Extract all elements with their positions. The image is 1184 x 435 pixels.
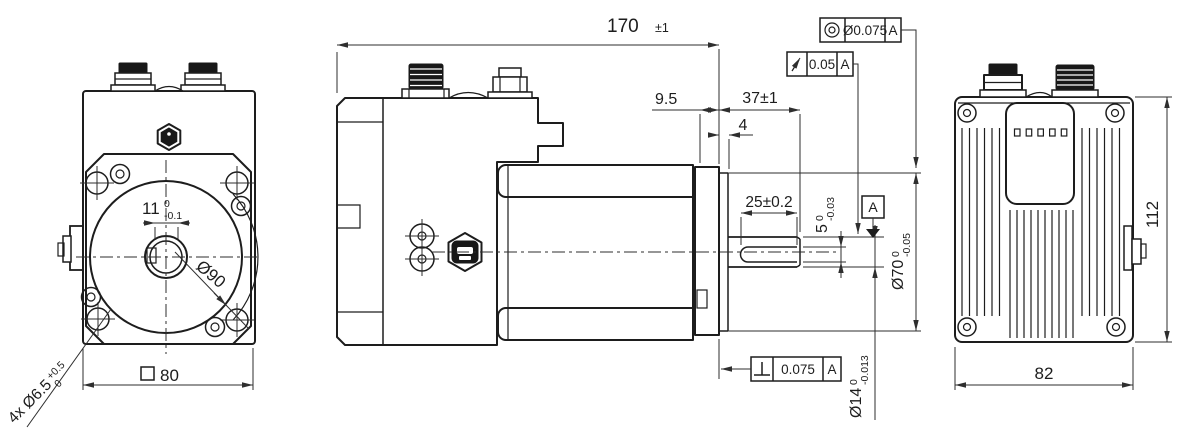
dim-shaft-diameter-value: Ø14 — [848, 388, 865, 418]
dim-keyway-length-value: 25±0.2 — [745, 194, 792, 211]
dim-pilot-fit-value: Ø70 — [890, 260, 907, 290]
dim-keyway-width-upper: 0 — [164, 198, 170, 210]
m12-connector-icon — [1052, 65, 1098, 97]
dim-shaft-diameter-lower: -0.013 — [859, 355, 871, 385]
hex-bolt-icon — [158, 124, 181, 150]
heatsink-housing — [955, 64, 1146, 342]
fcf-runout-value: 0.05 — [809, 57, 835, 72]
dim-shaft-diameter: Ø14 0 -0.013 — [803, 225, 884, 420]
front-view: 11 0 -0.1 Ø90 80 4x Ø6.5 +0.5 0 — [4, 63, 259, 430]
fcf-runout-datum: A — [840, 57, 849, 72]
fcf-concentricity-datum: A — [888, 23, 897, 38]
dim-overall-length-tol: ±1 — [655, 21, 669, 35]
dim-pilot-fit-lower: -0.05 — [901, 233, 913, 257]
m12-connector-icon — [111, 63, 155, 91]
dim-pilot-height: 4 — [709, 117, 753, 169]
perpendicularity-icon — [754, 362, 770, 375]
side-connector-icon — [1124, 226, 1146, 270]
fcf-perpendicularity: 0.075 A — [719, 339, 841, 381]
small-connector-icon — [488, 68, 532, 98]
shaft-keyway — [741, 247, 798, 262]
side-view: 170 ±1 9.5 37±1 4 25±0 — [337, 16, 921, 420]
back-view: 112 82 — [955, 64, 1172, 390]
drawing-sheet: 11 0 -0.1 Ø90 80 4x Ø6.5 +0.5 0 — [0, 0, 1184, 435]
datum-a-label: A — [868, 199, 878, 215]
fcf-runout: 0.05 A — [787, 52, 858, 234]
datum-a: A — [862, 196, 884, 238]
dim-overall-length-value: 170 — [607, 16, 639, 37]
side-connector-icon — [58, 226, 83, 270]
dim-pilot-height-value: 4 — [739, 117, 748, 134]
dim-flange-square-value: 80 — [160, 366, 179, 385]
dim-mounting-holes-value: 4x Ø6.5 — [5, 376, 55, 426]
fcf-concentricity-value: Ø0.075 — [843, 23, 887, 38]
dim-shaft-length-value: 37±1 — [742, 90, 778, 107]
dim-body-width-value: 82 — [1035, 364, 1054, 383]
concentricity-icon — [825, 23, 839, 37]
dim-keyway-width-value: 11 — [142, 199, 160, 218]
front-flange — [76, 154, 259, 354]
dim-flange-offset: 9.5 — [652, 91, 719, 163]
dim-flange-offset-value: 9.5 — [655, 91, 677, 108]
dim-keyway-width-lower: -0.1 — [164, 210, 182, 222]
led-panel — [1006, 103, 1074, 204]
dim-body-height: 112 — [1135, 97, 1172, 342]
square-symbol-icon — [141, 367, 154, 380]
dim-body-width: 82 — [955, 347, 1133, 390]
dim-keyway-height-lower: -0.03 — [825, 197, 837, 221]
fcf-perpendicularity-value: 0.075 — [781, 362, 815, 377]
drive-housing — [337, 64, 563, 345]
circular-runout-icon — [792, 58, 800, 71]
dim-flange-square: 80 — [83, 348, 253, 390]
motor-dimension-drawing: 11 0 -0.1 Ø90 80 4x Ø6.5 +0.5 0 — [0, 0, 1184, 435]
m12-connector-icon — [402, 64, 449, 98]
fcf-perpendicularity-datum: A — [827, 362, 836, 377]
motor-flange — [695, 167, 719, 335]
m12-connector-icon — [980, 64, 1026, 97]
dim-body-height-value: 112 — [1143, 201, 1162, 228]
fcf-concentricity: Ø0.075 A — [820, 18, 916, 168]
dim-keyway-height-value: 5 — [814, 224, 831, 233]
m12-connector-icon — [181, 63, 225, 91]
